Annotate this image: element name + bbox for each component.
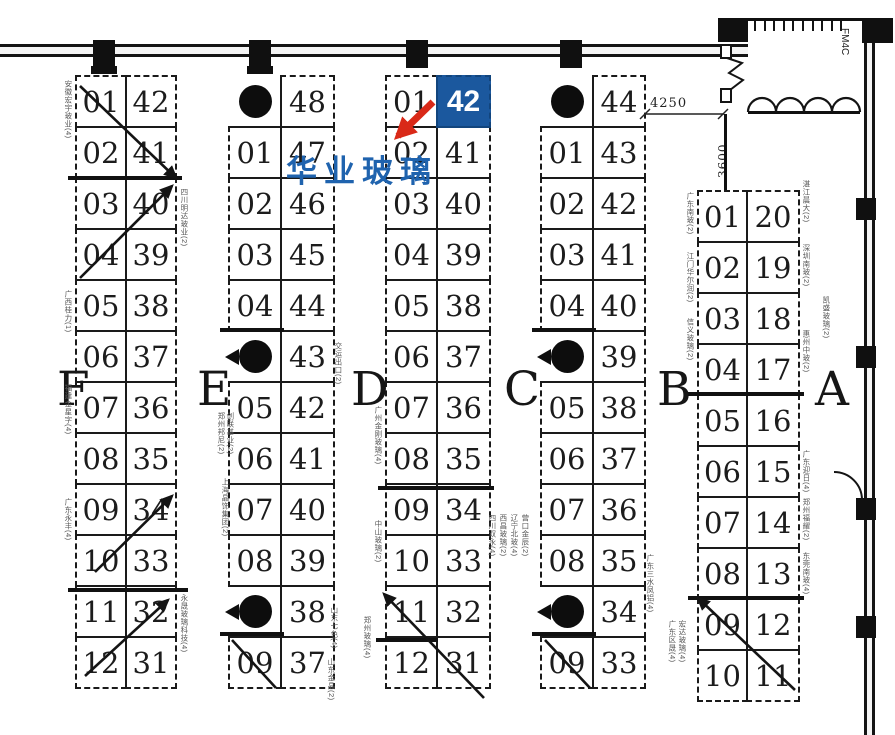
pillar-notch-icon: [537, 604, 551, 620]
aisle-wall: [376, 638, 438, 642]
exhibitor-label: 营口金辰(2): [521, 514, 529, 557]
booth-D-11[interactable]: 11: [385, 585, 438, 638]
exhibitor-label: 四川明达玻业(2): [180, 188, 188, 247]
right-wall-block: [856, 198, 876, 220]
booth-D-08[interactable]: 08: [385, 432, 438, 485]
booth-D-33[interactable]: 33: [436, 534, 491, 587]
booth-D-09[interactable]: 09: [385, 483, 438, 536]
booth-B-13[interactable]: 13: [746, 547, 800, 600]
booth-C-43[interactable]: 43: [592, 126, 646, 179]
booth-D-34[interactable]: 34: [436, 483, 491, 536]
booth-E-04[interactable]: 04: [228, 279, 282, 332]
booth-F-09[interactable]: 09: [75, 483, 127, 536]
booth-E-02[interactable]: 02: [228, 177, 282, 230]
aisle-wall: [220, 632, 284, 636]
booth-F-37[interactable]: 37: [125, 330, 177, 383]
booth-E-38[interactable]: 38: [280, 585, 335, 638]
booth-C-07[interactable]: 07: [540, 483, 594, 536]
wall-hatch-tick: [773, 21, 775, 31]
booth-E-44[interactable]: 44: [280, 279, 335, 332]
wall-hatch-tick: [764, 21, 766, 31]
booth-B-16[interactable]: 16: [746, 394, 800, 447]
booth-D-37[interactable]: 37: [436, 330, 491, 383]
exhibitor-label: 广州金刚玻璃(4): [374, 406, 382, 465]
booth-D-32[interactable]: 32: [436, 585, 491, 638]
booth-B-05[interactable]: 05: [697, 394, 748, 447]
booth-B-20[interactable]: 20: [746, 190, 800, 243]
booth-B-02[interactable]: 02: [697, 241, 748, 294]
booth-D-01[interactable]: 01: [385, 75, 438, 128]
section-letter-D: D: [351, 366, 389, 413]
booth-D-35[interactable]: 35: [436, 432, 491, 485]
booth-D-04[interactable]: 04: [385, 228, 438, 281]
booth-B-17[interactable]: 17: [746, 343, 800, 396]
exhibitor-label: 创联基业(2): [226, 412, 234, 455]
aisle-wall: [378, 486, 494, 490]
booth-B-06[interactable]: 06: [697, 445, 748, 498]
wall-corner-block: [718, 18, 748, 42]
wall-column-foot: [91, 66, 117, 74]
booth-F-05[interactable]: 05: [75, 279, 127, 332]
aisle-wall: [688, 596, 804, 600]
aisle-wall: [68, 176, 182, 180]
dimension-width-label: 4250: [650, 96, 687, 111]
booth-C-33[interactable]: 33: [592, 636, 646, 689]
pillar-icon: [551, 340, 584, 373]
booth-B-15[interactable]: 15: [746, 445, 800, 498]
booth-F-31[interactable]: 31: [125, 636, 177, 689]
pillar-icon: [239, 85, 272, 118]
section-letter-C: C: [504, 366, 540, 413]
exhibitor-label: 辽宁北玻(4): [510, 514, 518, 557]
booth-E-48[interactable]: 48: [280, 75, 335, 128]
booth-C-44[interactable]: 44: [592, 75, 646, 128]
booth-C-08[interactable]: 08: [540, 534, 594, 587]
exhibition-floorplan: 华业玻璃 4250 3600 FM4C 01420241034004390538…: [0, 0, 895, 735]
booth-C-01[interactable]: 01: [540, 126, 594, 179]
booth-E-41[interactable]: 41: [280, 432, 335, 485]
aisle-wall: [532, 328, 596, 332]
wall-hatch-tick: [821, 21, 823, 31]
door-leaf-icon: [727, 58, 743, 90]
exhibitor-label: 山东金晶(2): [327, 658, 335, 701]
booth-B-04[interactable]: 04: [697, 343, 748, 396]
exhibitor-label: 江门华尔润(2): [686, 252, 694, 303]
aisle-wall: [68, 588, 188, 592]
right-wall-block: [856, 616, 876, 638]
booth-D-39[interactable]: 39: [436, 228, 491, 281]
booth-F-39[interactable]: 39: [125, 228, 177, 281]
entrance-scallop-arcs: [748, 98, 860, 112]
section-letter-E: E: [197, 366, 231, 413]
booth-B-12[interactable]: 12: [746, 598, 800, 651]
exhibitor-label: 广西桂力(1): [64, 290, 72, 333]
booth-B-14[interactable]: 14: [746, 496, 800, 549]
booth-F-02[interactable]: 02: [75, 126, 127, 179]
booth-C-05[interactable]: 05: [540, 381, 594, 434]
booth-D-40[interactable]: 40: [436, 177, 491, 230]
right-wall-block: [856, 498, 876, 520]
exhibitor-label: 郑州邦尼(2): [217, 412, 225, 455]
exhibitor-label: 四川双永(4): [488, 514, 496, 557]
exhibitor-label: 安徽宏宇玻业(4): [64, 80, 72, 139]
booth-F-12[interactable]: 12: [75, 636, 127, 689]
exhibitor-label: 信义玻璃(2): [686, 318, 694, 361]
booth-D-07[interactable]: 07: [385, 381, 438, 434]
booth-C-42[interactable]: 42: [592, 177, 646, 230]
fire-door-label: FM4C: [839, 28, 850, 55]
pillar-icon: [551, 595, 584, 628]
wall-hatch-tick: [831, 21, 833, 31]
exhibitor-label: 郑州福耀(2): [802, 498, 810, 541]
booth-F-04[interactable]: 04: [75, 228, 127, 281]
aisle-wall: [220, 328, 284, 332]
pillar-icon: [551, 85, 584, 118]
wall-hatch-tick: [783, 21, 785, 31]
vestibule-wall: [724, 114, 727, 190]
wall-column: [406, 40, 428, 68]
booth-F-42[interactable]: 42: [125, 75, 177, 128]
booth-D-31[interactable]: 31: [436, 636, 491, 689]
booth-C-38[interactable]: 38: [592, 381, 646, 434]
booth-C-37[interactable]: 37: [592, 432, 646, 485]
booth-D-06[interactable]: 06: [385, 330, 438, 383]
wall-column: [93, 40, 115, 68]
booth-F-01[interactable]: 01: [75, 75, 127, 128]
booth-B-10[interactable]: 10: [697, 649, 748, 702]
exhibitor-label: 惠州中玻(2): [802, 330, 810, 373]
booth-E-40[interactable]: 40: [280, 483, 335, 536]
aisle-wall: [688, 392, 804, 396]
exhibitor-label: 广东三水凤铝(4): [646, 554, 654, 613]
wall-column: [560, 40, 582, 68]
wall-hatch-tick: [792, 21, 794, 31]
booth-B-08[interactable]: 08: [697, 547, 748, 600]
exhibitor-label: 上海晶饰集团(2): [221, 478, 229, 537]
booth-F-32[interactable]: 32: [125, 585, 177, 638]
exhibitor-label: 广东永丰(4): [64, 498, 72, 541]
wall-hatch-tick: [840, 21, 842, 31]
exhibitor-label: 广东南玻(2): [686, 192, 694, 235]
aisle-wall: [532, 632, 596, 636]
corner-block: [862, 18, 893, 43]
booth-E-01[interactable]: 01: [228, 126, 282, 179]
section-letter-F: F: [57, 366, 90, 413]
booth-C-36[interactable]: 36: [592, 483, 646, 536]
booth-E-06[interactable]: 06: [228, 432, 282, 485]
booth-F-36[interactable]: 36: [125, 381, 177, 434]
booth-F-40[interactable]: 40: [125, 177, 177, 230]
wall-hatch-tick: [754, 21, 756, 31]
door-frame: [720, 44, 732, 59]
booth-C-34[interactable]: 34: [592, 585, 646, 638]
booth-C-04[interactable]: 04: [540, 279, 594, 332]
booth-C-41[interactable]: 41: [592, 228, 646, 281]
exhibitor-label: 广东区晟(4): [668, 620, 676, 663]
pillar-notch-icon: [225, 604, 239, 620]
wall-column: [249, 40, 271, 68]
booth-B-07[interactable]: 07: [697, 496, 748, 549]
booth-B-09[interactable]: 09: [697, 598, 748, 651]
booth-C-06[interactable]: 06: [540, 432, 594, 485]
exhibitor-label: 郑州玻璃(4): [363, 616, 371, 659]
exhibitor-label: 永晟玻璃科技(4): [180, 594, 188, 653]
booth-E-03[interactable]: 03: [228, 228, 282, 281]
booth-C-02[interactable]: 02: [540, 177, 594, 230]
exhibitor-label: 交运出口(2): [334, 342, 342, 385]
exhibitor-label: 湛江晨大(2): [802, 180, 810, 223]
booth-E-08[interactable]: 08: [228, 534, 282, 587]
booth-E-45[interactable]: 45: [280, 228, 335, 281]
exhibitor-label: 西昌玻璃(2): [499, 514, 507, 557]
booth-C-09[interactable]: 09: [540, 636, 594, 689]
booth-C-03[interactable]: 03: [540, 228, 594, 281]
booth-B-03[interactable]: 03: [697, 292, 748, 345]
exhibitor-label: 宏达玻璃(4): [678, 620, 686, 663]
wall-column-foot: [247, 66, 273, 74]
booth-F-35[interactable]: 35: [125, 432, 177, 485]
wall-hatch-tick: [802, 21, 804, 31]
booth-C-39[interactable]: 39: [592, 330, 646, 383]
right-wall-block: [856, 346, 876, 368]
exhibitor-label: 凯盛玻璃(2): [822, 296, 830, 339]
booth-F-33[interactable]: 33: [125, 534, 177, 587]
booth-E-05[interactable]: 05: [228, 381, 282, 434]
booth-E-07[interactable]: 07: [228, 483, 282, 536]
booth-E-42[interactable]: 42: [280, 381, 335, 434]
booth-D-10[interactable]: 10: [385, 534, 438, 587]
booth-B-11[interactable]: 11: [746, 649, 800, 702]
booth-E-39[interactable]: 39: [280, 534, 335, 587]
booth-B-18[interactable]: 18: [746, 292, 800, 345]
booth-D-38[interactable]: 38: [436, 279, 491, 332]
booth-F-03[interactable]: 03: [75, 177, 127, 230]
booth-E-09[interactable]: 09: [228, 636, 282, 689]
exhibitor-company-label: 华业玻璃: [286, 146, 438, 191]
booth-D-41[interactable]: 41: [436, 126, 491, 179]
door-frame: [720, 88, 732, 103]
booth-F-41[interactable]: 41: [125, 126, 177, 179]
highlighted-booth-D-42[interactable]: 42: [436, 75, 491, 128]
exhibitor-label: 中山玻璃(2): [374, 520, 382, 563]
booth-F-10[interactable]: 10: [75, 534, 127, 587]
dimension-height-label: 3600: [716, 126, 730, 178]
booth-D-36[interactable]: 36: [436, 381, 491, 434]
booth-C-40[interactable]: 40: [592, 279, 646, 332]
section-letter-A: A: [815, 366, 849, 413]
booth-D-12[interactable]: 12: [385, 636, 438, 689]
pillar-icon: [239, 595, 272, 628]
booth-D-05[interactable]: 05: [385, 279, 438, 332]
exhibitor-label: 广东迎日(4): [802, 450, 810, 493]
wall-hatch-tick: [812, 21, 814, 31]
booth-F-38[interactable]: 38: [125, 279, 177, 332]
exhibitor-label: 深圳南玻(2): [802, 244, 810, 287]
booth-C-35[interactable]: 35: [592, 534, 646, 587]
booth-F-11[interactable]: 11: [75, 585, 127, 638]
entrance-threshold: [748, 111, 860, 114]
exhibitor-label: 福建金星字(4): [64, 384, 72, 435]
booth-F-34[interactable]: 34: [125, 483, 177, 536]
booth-B-01[interactable]: 01: [697, 190, 748, 243]
section-letter-B: B: [657, 366, 692, 413]
right-wall-door-arc: [834, 472, 862, 500]
exhibitor-label: 东莞南玻(4): [802, 552, 810, 595]
exhibitor-label: 山东七色(4): [330, 606, 338, 649]
booth-E-43[interactable]: 43: [280, 330, 335, 383]
booth-F-08[interactable]: 08: [75, 432, 127, 485]
pillar-icon: [239, 340, 272, 373]
booth-B-19[interactable]: 19: [746, 241, 800, 294]
